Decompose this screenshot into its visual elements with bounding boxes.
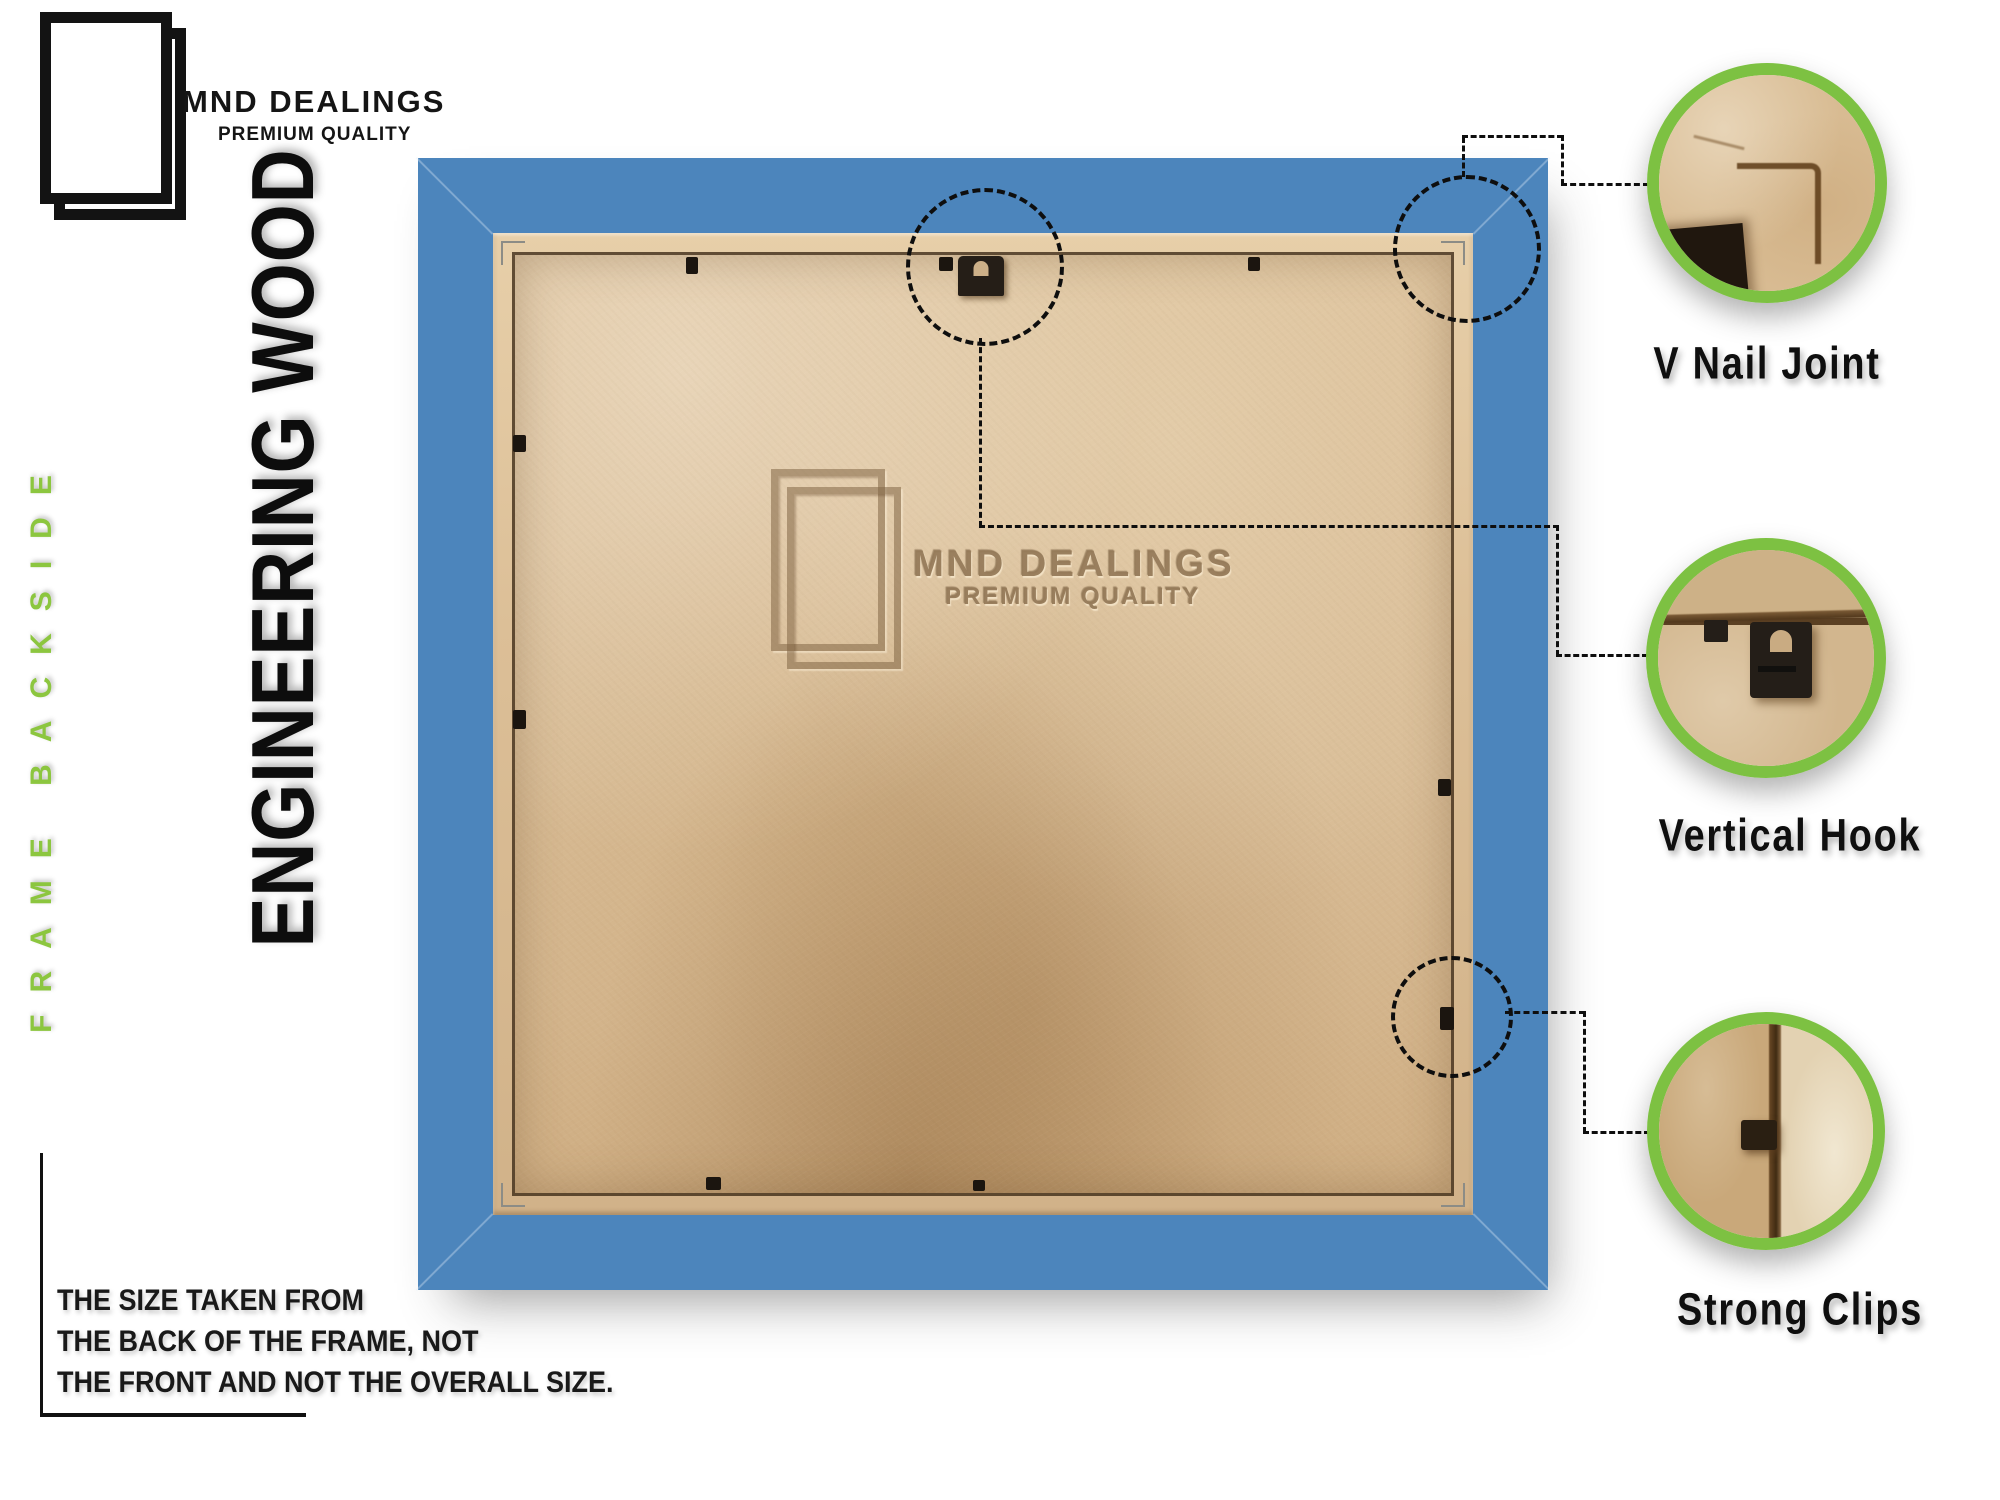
strong-clip-hardware	[1741, 1120, 1777, 1150]
retaining-clip	[1438, 779, 1451, 796]
retaining-clip	[1704, 620, 1728, 642]
brand-tagline: PREMIUM QUALITY	[218, 124, 411, 146]
callout-label-strong-clips: Strong Clips	[1615, 1285, 1985, 1336]
retaining-clip	[513, 435, 526, 452]
inner-wood-strip: MND DEALINGS PREMIUM QUALITY	[493, 233, 1473, 1215]
miter-line	[416, 157, 494, 235]
frame-backside-label: FRAME BACKSIDE	[25, 363, 65, 1123]
miter-line	[1473, 1213, 1551, 1291]
connector-line	[1462, 135, 1563, 138]
connector-line	[1556, 525, 1559, 656]
engineering-wood-label: ENGINEERING WOOD	[232, 250, 332, 947]
note-rule-vertical	[40, 1153, 43, 1415]
size-note-line-2: THE BACK OF THE FRAME, NOT	[57, 1321, 614, 1362]
connector-line	[979, 338, 982, 527]
callout-label-vertical-hook: Vertical Hook	[1605, 811, 1975, 862]
focus-ring-corner-joint	[1393, 175, 1541, 323]
wood-strip-surface	[1777, 1024, 1873, 1238]
wood-grain-texture	[515, 255, 1451, 1193]
callout-vertical-hook	[1646, 538, 1886, 778]
connector-line	[979, 525, 1559, 528]
size-note: THE SIZE TAKEN FROM THE BACK OF THE FRAM…	[57, 1280, 614, 1403]
retaining-clip	[686, 257, 698, 274]
v-nail-photo-detail	[1659, 75, 1875, 291]
note-rule-horizontal	[40, 1413, 306, 1417]
frame-corner-shadow	[1647, 223, 1751, 303]
retaining-clip	[513, 710, 526, 729]
connector-line	[1583, 1011, 1586, 1133]
retaining-clip	[1248, 257, 1260, 271]
brand-name: MND DEALINGS	[182, 84, 445, 120]
retaining-clip	[973, 1180, 985, 1191]
watermark-logo-icon	[787, 487, 901, 669]
callout-label-v-nail-joint: V Nail Joint	[1582, 339, 1952, 390]
strong-clip-photo-detail	[1659, 1024, 1873, 1238]
connector-line	[1561, 135, 1564, 185]
focus-ring-hanging-hook	[906, 188, 1064, 346]
vertical-hook-hardware	[1750, 622, 1812, 698]
connector-line	[1505, 1011, 1585, 1014]
connector-line	[1561, 183, 1649, 186]
focus-ring-side-clip	[1391, 956, 1513, 1078]
brand-logo-frame-icon	[40, 12, 172, 204]
connector-line	[1556, 654, 1648, 657]
size-note-line-3: THE FRONT AND NOT THE OVERALL SIZE.	[57, 1362, 614, 1403]
wood-crack-line	[1693, 135, 1744, 150]
watermark-tagline: PREMIUM QUALITY	[945, 583, 1200, 611]
connector-line	[1462, 137, 1465, 177]
retaining-clip	[706, 1177, 721, 1190]
product-infographic: MND DEALINGS PREMIUM QUALITY FRAME BACKS…	[0, 0, 2000, 1500]
v-nail-groove	[1737, 163, 1821, 264]
mdf-back-panel: MND DEALINGS PREMIUM QUALITY	[515, 255, 1451, 1193]
callout-strong-clips	[1647, 1012, 1885, 1250]
callout-v-nail-joint	[1647, 63, 1887, 303]
connector-line	[1583, 1131, 1650, 1134]
watermark-name: MND DEALINGS	[913, 543, 1235, 585]
vertical-hook-photo-detail	[1658, 550, 1874, 766]
miter-line	[416, 1213, 494, 1291]
